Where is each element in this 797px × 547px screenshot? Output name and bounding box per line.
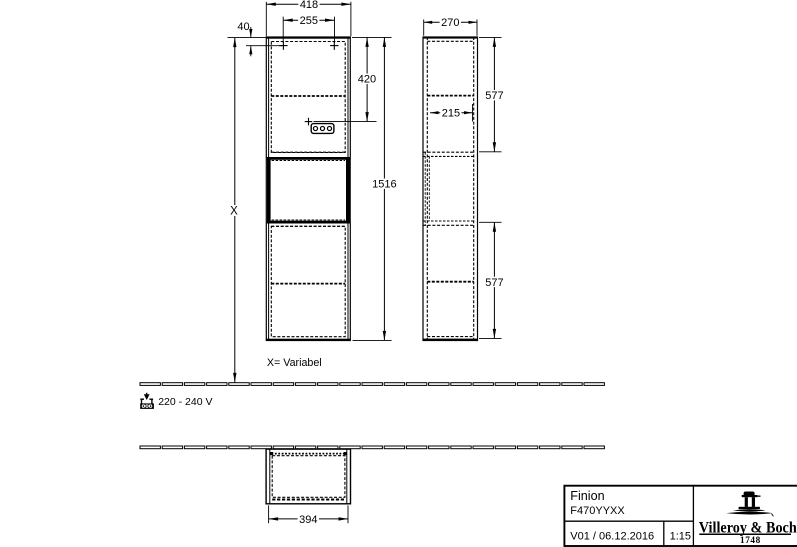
svg-text:220 - 240 V: 220 - 240 V [158,396,212,408]
svg-text:X= Variabel: X= Variabel [267,357,322,369]
svg-text:1516: 1516 [372,179,396,191]
svg-text:577: 577 [485,90,503,102]
svg-text:40: 40 [237,21,249,33]
svg-text:F470YYXX: F470YYXX [570,505,625,517]
svg-text:394: 394 [299,514,317,526]
svg-text:Finion: Finion [570,489,604,503]
svg-text:270: 270 [441,17,459,29]
svg-text:420: 420 [358,74,376,86]
svg-text:X: X [230,206,238,218]
svg-text:V01 / 06.12.2016: V01 / 06.12.2016 [570,531,654,543]
svg-text:577: 577 [485,277,503,289]
svg-text:1:15: 1:15 [670,531,691,543]
svg-text:215: 215 [442,108,460,120]
svg-text:255: 255 [300,15,318,27]
svg-text:418: 418 [300,0,318,11]
svg-text:1748: 1748 [740,535,761,545]
